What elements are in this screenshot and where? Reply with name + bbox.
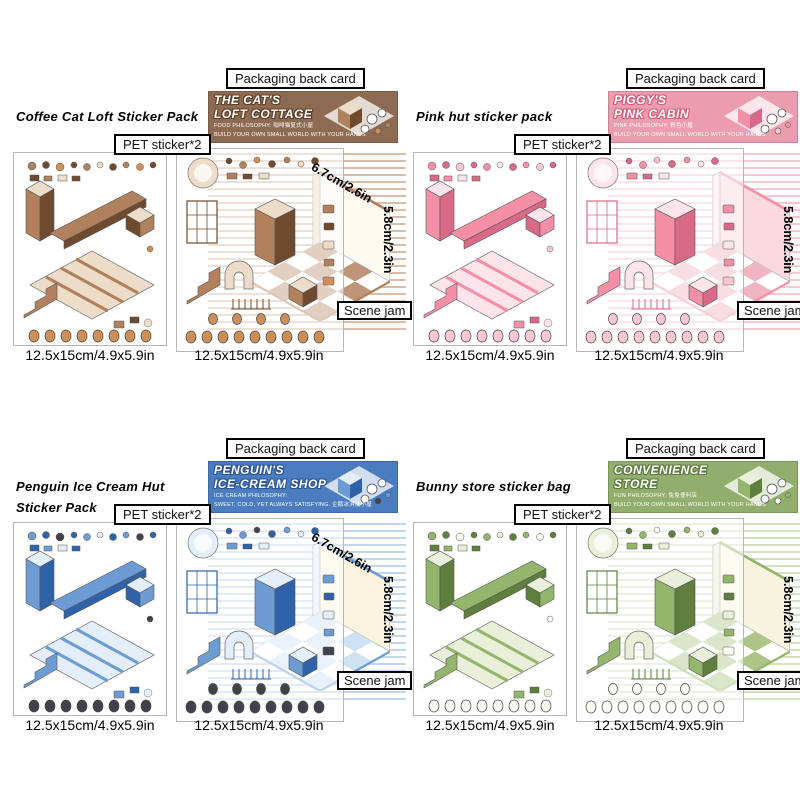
banner-subtitle-1: ICE CREAM PHILOSOPHY: [214,493,372,500]
sticker-sheet-2 [176,518,344,722]
scene-jam-label: Scene jam [737,301,800,320]
product-panel-pink-hut: PIGGY'S PINK CABIN PINK PHILOSOPHY: 粉色小屋… [400,60,800,400]
banner-text: THE CAT'S LOFT COTTAGE FOOD PHILOSOPHY: … [214,94,366,139]
sheet-2-size-label: 12.5x15cm/4.9x5.9in [168,717,350,733]
scene-jam-label: Scene jam [337,301,412,320]
packaging-banner: CONVENIENCE STORE FUN PHILOSOPHY: 兔兔便利店 … [608,461,798,513]
sheet-2-size-label: 12.5x15cm/4.9x5.9in [568,717,750,733]
sheet-2-size-label: 12.5x15cm/4.9x5.9in [568,347,750,363]
sticker-sheet-1 [413,522,567,716]
scene-height-dimension-label: 5.8cm/2.3in [781,206,795,273]
packaging-back-card-label: Packaging back card [626,68,765,89]
sticker-sheet-1 [13,152,167,346]
product-title-line1: Coffee Cat Loft Sticker Pack [16,106,221,127]
banner-subtitle-2: SWEET, COLD, YET ALWAYS SATISFYING. 企鹅冰淇… [214,502,372,509]
sheet-2-illustration [577,519,743,721]
banner-subtitle-1: FUN PHILOSOPHY: 兔兔便利店 [614,493,766,500]
banner-title-line1: THE CAT'S [214,94,366,108]
sheet-2-illustration [177,519,343,721]
banner-title-line2: STORE [614,478,766,492]
packaging-back-card-label: Packaging back card [226,68,365,89]
banner-text: CONVENIENCE STORE FUN PHILOSOPHY: 兔兔便利店 … [614,464,766,509]
sticker-sheet-1 [413,152,567,346]
sheet-1-size-label: 12.5x15cm/4.9x5.9in [402,347,578,363]
banner-title-line1: PIGGY'S [614,94,766,108]
banner-subtitle-1: PINK PHILOSOPHY: 粉色小屋 [614,123,766,130]
packaging-banner: THE CAT'S LOFT COTTAGE FOOD PHILOSOPHY: … [208,91,398,143]
sheet-1-illustration [414,523,566,715]
sheet-1-illustration [14,523,166,715]
banner-title-line1: CONVENIENCE [614,464,766,478]
sticker-sheet-2 [576,148,744,352]
packaging-back-card-label: Packaging back card [226,438,365,459]
banner-subtitle-2: BUILD YOUR OWN SMALL WORLD WITH YOUR HAN… [614,132,766,139]
pet-sticker-label: PET sticker*2 [114,504,211,525]
sheet-1-illustration [414,153,566,345]
product-panel-coffee-cat-loft: THE CAT'S LOFT COTTAGE FOOD PHILOSOPHY: … [0,60,400,400]
scene-jam-label: Scene jam [737,671,800,690]
scene-height-dimension-label: 5.8cm/2.3in [381,206,395,273]
product-title: Bunny store sticker bag [416,476,621,497]
packaging-back-card-label: Packaging back card [626,438,765,459]
product-panel-bunny-store: CONVENIENCE STORE FUN PHILOSOPHY: 兔兔便利店 … [400,430,800,770]
packaging-banner: PIGGY'S PINK CABIN PINK PHILOSOPHY: 粉色小屋… [608,91,798,143]
scene-height-dimension-label: 5.8cm/2.3in [781,576,795,643]
sheet-1-illustration [14,153,166,345]
banner-subtitle-2: BUILD YOUR OWN SMALL WORLD WITH YOUR HAN… [614,502,766,509]
sheet-2-size-label: 12.5x15cm/4.9x5.9in [168,347,350,363]
sheet-1-size-label: 12.5x15cm/4.9x5.9in [402,717,578,733]
product-title-line1: Penguin Ice Cream Hut [16,476,221,497]
product-title: Pink hut sticker pack [416,106,621,127]
sticker-sheet-2 [576,518,744,722]
sheet-2-illustration [177,149,343,351]
product-title: Coffee Cat Loft Sticker Pack [16,106,221,127]
banner-subtitle-1: FOOD PHILOSOPHY: 咖啡猫复式小屋 [214,123,366,130]
sheet-1-size-label: 12.5x15cm/4.9x5.9in [2,347,178,363]
pet-sticker-label: PET sticker*2 [114,134,211,155]
pet-sticker-label: PET sticker*2 [514,134,611,155]
product-panel-penguin-ice-cream-hut: PENGUIN'S ICE-CREAM SHOP ICE CREAM PHILO… [0,430,400,770]
banner-title-line2: ICE-CREAM SHOP [214,478,372,492]
banner-text: PENGUIN'S ICE-CREAM SHOP ICE CREAM PHILO… [214,464,372,509]
sheet-1-size-label: 12.5x15cm/4.9x5.9in [2,717,178,733]
banner-title-line2: PINK CABIN [614,108,766,122]
sheet-2-illustration [577,149,743,351]
banner-title-line1: PENGUIN'S [214,464,372,478]
scene-jam-label: Scene jam [337,671,412,690]
sticker-sheet-2 [176,148,344,352]
product-title-line1: Pink hut sticker pack [416,106,621,127]
pet-sticker-label: PET sticker*2 [514,504,611,525]
sticker-sheet-1 [13,522,167,716]
banner-text: PIGGY'S PINK CABIN PINK PHILOSOPHY: 粉色小屋… [614,94,766,139]
banner-subtitle-2: BUILD YOUR OWN SMALL WORLD WITH YOUR HAN… [214,132,366,139]
packaging-banner: PENGUIN'S ICE-CREAM SHOP ICE CREAM PHILO… [208,461,398,513]
scene-height-dimension-label: 5.8cm/2.3in [381,576,395,643]
product-title-line1: Bunny store sticker bag [416,476,621,497]
banner-title-line2: LOFT COTTAGE [214,108,366,122]
